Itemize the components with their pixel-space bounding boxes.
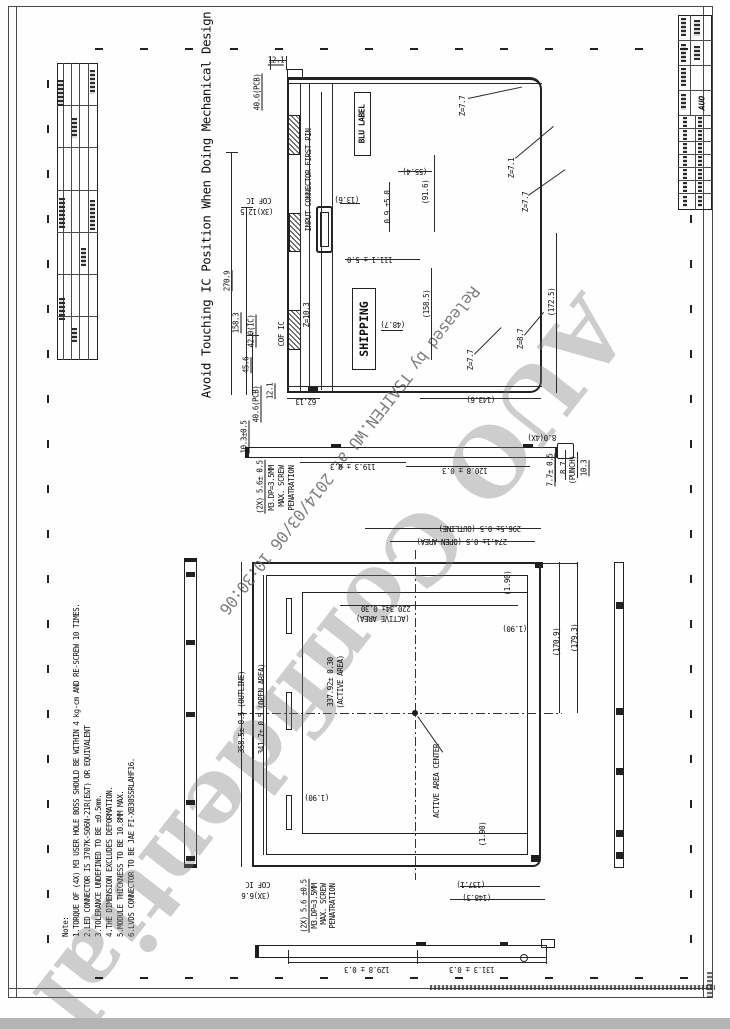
- zone-tick: [47, 800, 49, 808]
- zone-tick: [690, 575, 692, 583]
- notes-heading: Note:: [60, 529, 71, 937]
- note-line: 1.TORQUE OF (4X) M3 USER HOLE BOSS SHOUL…: [71, 529, 82, 937]
- dimension-line: [555, 448, 556, 482]
- zone-tick: [47, 935, 49, 943]
- dimension-label: COF IC: [246, 880, 271, 888]
- zone-tick: [690, 440, 692, 448]
- dimension-label: (91.6): [422, 180, 430, 205]
- dimension-label: 8.7: [560, 462, 568, 474]
- dimension-line: [241, 207, 253, 208]
- zone-tick: [680, 48, 688, 50]
- zone-tick: [690, 800, 692, 808]
- zone-tick: [47, 260, 49, 268]
- dimension-label: COF IC: [247, 196, 272, 204]
- illegible-text: [698, 143, 702, 153]
- dimension-label: 8.0(4X): [528, 433, 557, 441]
- zone-tick: [410, 977, 418, 979]
- dimension-label: PENATRATION: [288, 465, 296, 510]
- zone-tick: [690, 845, 692, 853]
- zone-tick: [47, 665, 49, 673]
- zone-tick: [47, 755, 49, 763]
- dimension-label: (1.90): [503, 624, 528, 632]
- zone-tick: [47, 80, 49, 88]
- illegible-text: [698, 130, 702, 140]
- dimension-label: COF IC: [278, 322, 286, 347]
- dimension-label: 40.6(PCB): [254, 73, 263, 110]
- zone-tick: [320, 48, 328, 50]
- blu-label-text: BLU LABEL: [358, 105, 367, 144]
- illegible-text: [59, 198, 65, 228]
- zone-tick: [690, 755, 692, 763]
- zone-tick: [455, 977, 463, 979]
- illegible-text: [683, 156, 687, 166]
- zone-tick: [47, 575, 49, 583]
- border-right-outer: [712, 6, 713, 997]
- dimension-line: [340, 203, 360, 204]
- dimension-line: [381, 330, 403, 331]
- zone-tick: [275, 48, 283, 50]
- dimension-line: [269, 60, 287, 61]
- dimension-label: (PUNCH): [569, 456, 577, 485]
- table-line: [678, 65, 712, 66]
- dimension-line: [300, 83, 301, 393]
- dimension-label: M3.DP=3.5MM: [311, 883, 319, 928]
- zone-tick: [545, 977, 553, 979]
- table-line: [616, 852, 623, 859]
- table-line: [690, 15, 691, 115]
- zone-tick: [635, 977, 643, 979]
- illegible-text: [698, 117, 702, 127]
- zone-tick: [365, 977, 373, 979]
- table-line: [186, 640, 195, 645]
- illegible-text: [681, 44, 686, 62]
- dimension-line: [309, 83, 310, 390]
- zone-tick: [500, 977, 508, 979]
- zone-tick: [690, 350, 692, 358]
- zone-tick: [275, 977, 283, 979]
- dimension-label: (1.90): [305, 793, 330, 801]
- zone-tick: [230, 48, 238, 50]
- zone-tick: [690, 710, 692, 718]
- table-line: [616, 708, 623, 715]
- zone-tick: [230, 977, 238, 979]
- dimension-line: [247, 335, 259, 336]
- zone-tick: [590, 977, 598, 979]
- illegible-text: [698, 196, 702, 207]
- warning-title: Avoid Touching IC Position When Doing Me…: [199, 12, 214, 398]
- dimension-label: 131.3 ± 0.3: [449, 965, 494, 973]
- dimension-label: 158.3: [233, 313, 242, 334]
- engineering-drawing-sheet: AUO Avoid Touching IC Position When Doin…: [0, 0, 730, 1029]
- zone-tick: [680, 977, 688, 979]
- dimension-label: (1.90): [504, 571, 512, 596]
- dimension-label: MAX. SCREW: [320, 883, 328, 924]
- zone-tick: [690, 935, 692, 943]
- dimension-line: [546, 952, 547, 964]
- zone-tick: [185, 977, 193, 979]
- dimension-line: [287, 398, 320, 399]
- zone-tick: [47, 350, 49, 358]
- zone-tick: [47, 395, 49, 403]
- auo-logo: AUO: [698, 96, 707, 110]
- dimension-line: [226, 152, 238, 153]
- zone-tick: [185, 48, 193, 50]
- dimension-line: [420, 398, 541, 399]
- side-bottom-boss-2: [500, 942, 508, 946]
- dimension-line: [450, 899, 545, 900]
- dimension-line: [541, 563, 578, 564]
- side-left-cap-top: [184, 558, 197, 562]
- view1-cof-hatch-1: [288, 115, 300, 155]
- dimension-label: 341.7± 0.5 (OPEN AREA): [258, 664, 266, 755]
- zone-tick: [690, 305, 692, 313]
- dimension-line: [556, 233, 557, 393]
- dimension-line: [246, 207, 247, 395]
- zone-tick: [47, 890, 49, 898]
- dimension-line: [577, 562, 578, 713]
- table-line: [186, 800, 195, 805]
- zone-tick: [47, 170, 49, 178]
- illegible-text: [72, 328, 77, 342]
- shipping-label-text: SHIPPING: [357, 301, 371, 356]
- dimension-label: 337.92± 0.30: [327, 657, 335, 706]
- dimension-label: 0.9 ±5.0: [384, 191, 392, 224]
- illegible-text: [90, 200, 95, 230]
- dimension-line: [289, 962, 418, 963]
- zone-tick: [690, 260, 692, 268]
- dimension-label: (2X) 5.6± 0.5: [257, 460, 266, 514]
- dimension-label: 12.1: [267, 383, 276, 399]
- illegible-text: [58, 80, 64, 106]
- table-line: [186, 712, 195, 717]
- illegible-text: [698, 169, 702, 179]
- dimension-line: [286, 56, 287, 70]
- zone-tick: [47, 305, 49, 313]
- dimension-line: [389, 182, 390, 232]
- dimension-line: [340, 605, 518, 606]
- dimension-label: (48.7): [381, 320, 406, 328]
- illegible-text: [681, 68, 686, 86]
- illegible-text: [683, 117, 687, 127]
- dimension-line: [565, 450, 566, 480]
- zone-tick: [410, 48, 418, 50]
- dimension-line: [252, 333, 253, 395]
- view1-top-notch: [287, 69, 303, 78]
- dimension-label: MAX. SCREW: [278, 465, 286, 506]
- illegible-text: [683, 143, 687, 153]
- dimension-line: [332, 83, 333, 393]
- zone-tick: [47, 845, 49, 853]
- dimension-line: [417, 950, 418, 964]
- dimension-line: [321, 92, 322, 390]
- zone-tick: [47, 215, 49, 223]
- dimension-label: (ACTIVE AREA): [356, 614, 410, 622]
- dimension-label: 10.3±0.5: [241, 421, 250, 454]
- side-bottom-screw: [520, 954, 528, 962]
- zone-tick: [47, 485, 49, 493]
- dimension-line: [231, 152, 232, 395]
- dimension-line: [288, 950, 289, 964]
- zone-tick: [365, 48, 373, 50]
- dimension-label: Z=8.7: [517, 329, 525, 350]
- dimension-label: 120.8 ± 0.3: [442, 466, 487, 474]
- illegible-text: [683, 182, 687, 192]
- table-line: [678, 40, 712, 41]
- illegible-text: [681, 18, 686, 36]
- zone-tick: [95, 977, 103, 979]
- side-view-bottom-bar: [255, 945, 547, 958]
- zone-tick: [455, 48, 463, 50]
- dimension-label: ACTIVE AREA CENTER: [433, 744, 441, 818]
- dimension-label: (ACTIVE AREA): [337, 655, 345, 709]
- table-line: [186, 572, 195, 577]
- zone-tick: [320, 977, 328, 979]
- zone-tick: [590, 48, 598, 50]
- dimension-label: (13.6): [335, 195, 360, 203]
- dimension-line: [406, 466, 530, 467]
- dimension-label: 10.3: [581, 460, 590, 476]
- illegible-text: [90, 70, 95, 94]
- illegible-text: [681, 94, 686, 110]
- table-line: [678, 90, 712, 91]
- zone-tick: [47, 620, 49, 628]
- zone-tick: [635, 48, 643, 50]
- dimension-label: 40.6(PCB): [253, 385, 262, 422]
- dimension-line: [577, 452, 578, 478]
- border-top: [8, 6, 713, 7]
- side-bottom-end: [541, 939, 555, 948]
- zone-tick: [47, 440, 49, 448]
- illegible-text: [59, 298, 65, 320]
- zone-tick: [690, 890, 692, 898]
- zone-tick: [140, 977, 148, 979]
- zone-tick: [47, 125, 49, 133]
- side-bottom-cap: [255, 945, 259, 958]
- table-line: [57, 274, 98, 275]
- dimension-line: [460, 886, 540, 887]
- illegible-text: [81, 248, 86, 266]
- table-line: [616, 602, 623, 609]
- zone-tick: [690, 485, 692, 493]
- side-bottom-boss-1: [416, 942, 426, 946]
- bottom-disclaimer-microtext: [430, 985, 715, 990]
- border-left-inner: [16, 6, 17, 997]
- dimension-line: [345, 259, 420, 260]
- scan-edge: [0, 1018, 730, 1029]
- dimension-line: [434, 155, 435, 232]
- dimension-line: [390, 541, 535, 542]
- dimension-label: (1.90): [479, 822, 487, 847]
- dimension-label: (2X) 5.6 ±0.5: [301, 879, 310, 933]
- illegible-text: [694, 20, 700, 36]
- view2-corner-mark-br: [531, 855, 539, 862]
- illegible-text: [698, 156, 702, 166]
- dimension-line: [263, 575, 264, 855]
- illegible-text: [694, 46, 700, 60]
- dimension-line: [398, 171, 432, 172]
- zone-tick: [95, 48, 103, 50]
- illegible-text: [683, 169, 687, 179]
- table-line: [57, 190, 98, 191]
- zone-tick: [690, 215, 692, 223]
- dimension-label: 45.6: [243, 357, 252, 373]
- zone-tick: [47, 530, 49, 538]
- zone-tick: [545, 48, 553, 50]
- zone-tick: [47, 710, 49, 718]
- right-edge-microtext: [707, 972, 712, 998]
- dimension-label: 129.8 ± 0.3: [344, 965, 389, 973]
- illegible-text: [698, 182, 702, 192]
- dimension-line: [241, 562, 242, 867]
- dimension-line: [300, 462, 406, 463]
- zone-tick: [690, 620, 692, 628]
- zone-tick: [500, 48, 508, 50]
- table-line: [57, 147, 98, 148]
- dimension-line: [559, 562, 560, 713]
- dimension-label: Z=7.1: [508, 158, 516, 179]
- table-line: [695, 115, 696, 210]
- illegible-text: [72, 118, 77, 138]
- illegible-text: [683, 130, 687, 140]
- dimension-line: [431, 268, 432, 360]
- table-line: [616, 830, 623, 837]
- zone-tick: [690, 530, 692, 538]
- dimension-label: 119.3 ± 0.3: [330, 462, 375, 470]
- border-left-outer: [8, 6, 9, 997]
- dimension-label: M3.DP=3.5MM: [268, 465, 276, 510]
- dimension-label: 358.5± 0.5 (OUTLINE): [238, 671, 246, 753]
- dimension-label: (172.5): [548, 288, 556, 317]
- zone-tick: [690, 395, 692, 403]
- dimension-label: PENATRATION: [329, 883, 337, 928]
- dimension-line: [287, 386, 542, 387]
- dimension-line: [287, 83, 542, 84]
- zone-tick: [690, 665, 692, 673]
- table-line: [616, 768, 623, 775]
- dimension-label: (3X)6.6: [242, 891, 271, 899]
- dimension-label: (158.5): [423, 290, 431, 319]
- dimension-label: Z=7.7: [459, 96, 467, 117]
- dimension-line: [365, 528, 541, 529]
- dimension-line: [270, 56, 271, 70]
- table-line: [57, 232, 98, 233]
- dimension-label: (143.6): [467, 395, 496, 403]
- illegible-text: [683, 196, 687, 207]
- table-line: [186, 856, 195, 861]
- zone-tick: [140, 48, 148, 50]
- dimension-line: [418, 962, 547, 963]
